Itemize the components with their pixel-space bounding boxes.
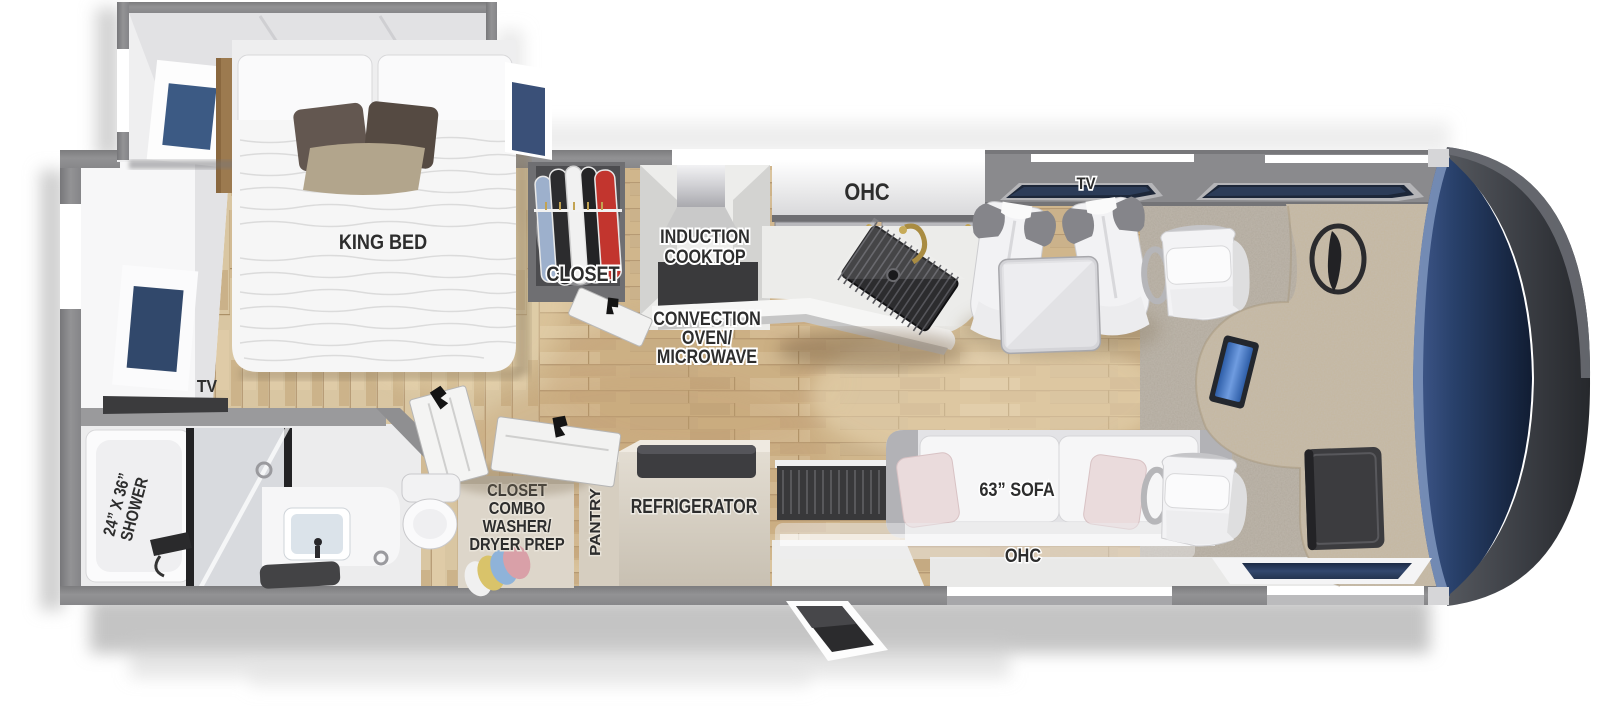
svg-text:TV: TV — [1076, 175, 1095, 193]
svg-text:KING BED: KING BED — [339, 231, 427, 255]
svg-text:WASHER/: WASHER/ — [483, 517, 552, 537]
svg-text:CLOSET: CLOSET — [546, 263, 619, 287]
svg-text:REFRIGERATOR: REFRIGERATOR — [631, 495, 758, 517]
svg-text:63” SOFA: 63” SOFA — [979, 479, 1054, 500]
svg-text:COMBO: COMBO — [489, 499, 546, 519]
svg-text:OHC: OHC — [844, 178, 889, 205]
svg-text:COOKTOP: COOKTOP — [664, 246, 746, 268]
svg-text:PANTRY: PANTRY — [588, 488, 604, 556]
svg-text:TV: TV — [197, 376, 218, 396]
svg-text:MICROWAVE: MICROWAVE — [657, 346, 757, 368]
svg-text:DRYER PREP: DRYER PREP — [469, 535, 564, 555]
svg-text:OHC: OHC — [1005, 545, 1041, 566]
svg-text:INDUCTION: INDUCTION — [660, 226, 750, 248]
